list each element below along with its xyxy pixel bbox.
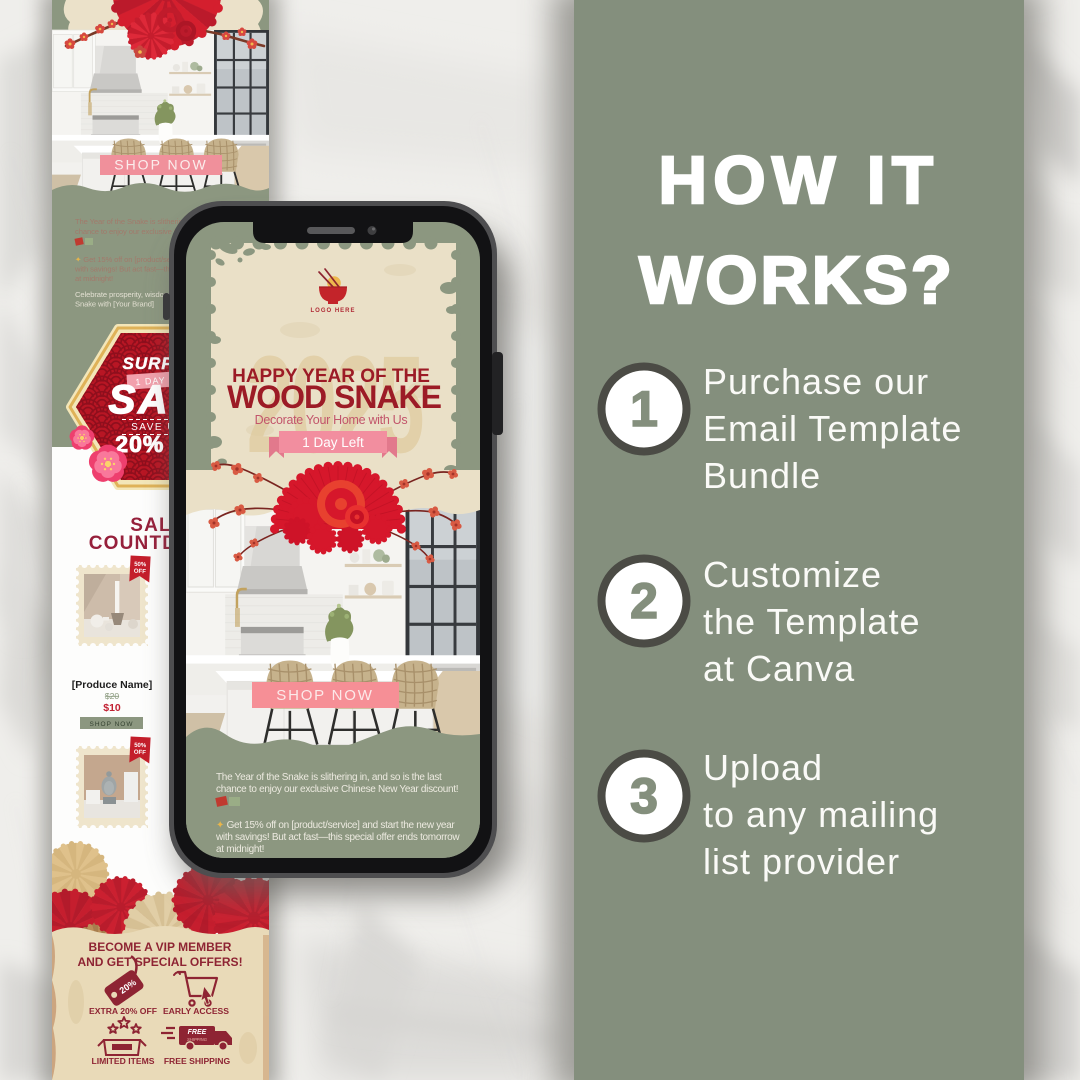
svg-text:OFF: OFF — [134, 750, 147, 757]
svg-text:HOW IT: HOW IT — [659, 143, 940, 218]
svg-text:1 Day Left: 1 Day Left — [302, 435, 364, 450]
svg-text:WORKS?: WORKS? — [639, 243, 955, 318]
svg-text:$20: $20 — [105, 691, 119, 701]
svg-text:FREE SHIPPING: FREE SHIPPING — [164, 1056, 231, 1066]
svg-text:EXTRA 20% OFF: EXTRA 20% OFF — [89, 1006, 157, 1016]
svg-text:50%: 50% — [134, 743, 147, 750]
svg-text:the Template: the Template — [703, 601, 920, 642]
svg-text:OFF: OFF — [134, 569, 147, 576]
svg-text:2: 2 — [630, 573, 658, 629]
svg-text:SHOP NOW: SHOP NOW — [114, 157, 208, 173]
svg-text:BECOME A VIP MEMBER: BECOME A VIP MEMBER — [89, 940, 232, 954]
svg-text:to any mailing: to any mailing — [703, 794, 939, 835]
svg-text:FREE: FREE — [188, 1029, 207, 1036]
svg-text:LOGO HERE: LOGO HERE — [310, 308, 355, 314]
svg-text:AND GET SPECIAL OFFERS!: AND GET SPECIAL OFFERS! — [77, 955, 242, 969]
svg-text:Email Template: Email Template — [703, 408, 962, 449]
svg-text:at midnight!: at midnight! — [216, 844, 264, 855]
svg-text:SHOP NOW: SHOP NOW — [90, 721, 134, 728]
svg-text:50%: 50% — [134, 562, 147, 569]
svg-text:[Produce Name]: [Produce Name] — [72, 679, 153, 691]
svg-text:$10: $10 — [103, 702, 121, 714]
svg-text:at midnight!: at midnight! — [75, 274, 113, 283]
svg-text:with savings! But act fast—thi: with savings! But act fast—this special … — [215, 832, 460, 843]
svg-text:Upload: Upload — [703, 747, 823, 788]
svg-text:Customize: Customize — [703, 554, 882, 595]
svg-text:Purchase our: Purchase our — [703, 361, 929, 402]
svg-text:WOOD SNAKE: WOOD SNAKE — [227, 379, 442, 415]
svg-text:Bundle: Bundle — [703, 455, 821, 496]
svg-text:EARLY ACCESS: EARLY ACCESS — [163, 1006, 229, 1016]
svg-text:LIMITED ITEMS: LIMITED ITEMS — [91, 1056, 154, 1066]
svg-text:The Year of the Snake is slith: The Year of the Snake is slithering in, … — [216, 772, 442, 783]
svg-text:Decorate Your Home with Us: Decorate Your Home with Us — [255, 413, 408, 427]
svg-text:3: 3 — [630, 768, 658, 824]
svg-text:Snake with [Your Brand]: Snake with [Your Brand] — [75, 300, 154, 309]
svg-text:chance to enjoy our exclusive: chance to enjoy our exclusive Chinese Ne… — [216, 784, 458, 795]
svg-text:SHOP NOW: SHOP NOW — [276, 687, 373, 704]
svg-text:at Canva: at Canva — [703, 648, 855, 689]
svg-text:list provider: list provider — [703, 841, 900, 882]
svg-text:✦ Get 15% off on [product/serv: ✦ Get 15% off on [product/service] and s… — [216, 820, 455, 831]
svg-text:1: 1 — [630, 381, 658, 437]
svg-text:SHIPPING: SHIPPING — [187, 1037, 208, 1042]
